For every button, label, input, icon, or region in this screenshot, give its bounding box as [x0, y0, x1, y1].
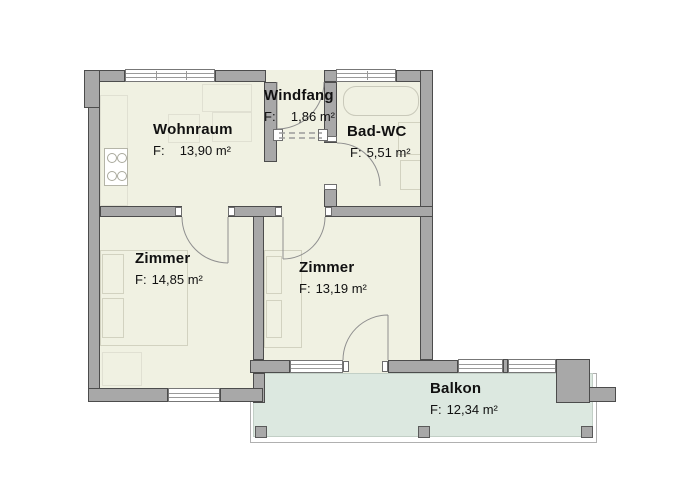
room-name: Wohnraum — [153, 122, 231, 139]
room-area: F:13,19 m² — [299, 282, 383, 296]
wall-interior — [325, 206, 433, 217]
threshold-jamb — [273, 129, 283, 141]
pillow — [102, 298, 124, 338]
door-jamb — [325, 207, 332, 216]
room-label-badwc: Bad-WC F:5,51 m² — [347, 124, 419, 160]
bathtub — [343, 86, 419, 116]
door-jamb — [275, 207, 282, 216]
balcony-post — [581, 426, 593, 438]
room-name: Bad-WC — [347, 124, 419, 141]
toilet — [400, 160, 421, 190]
room-area: F:13,90 m² — [153, 144, 231, 158]
room-area: F:1,86 m² — [264, 110, 335, 124]
wall-neighbor-tab — [589, 387, 616, 402]
window-neighbor — [508, 359, 556, 373]
wall-neighbor-corner — [556, 359, 590, 403]
window-zimmer1 — [168, 388, 220, 402]
room-label-windfang: Windfang F:1,86 m² — [264, 88, 335, 124]
dresser-zimmer1 — [102, 352, 142, 386]
balcony-post — [418, 426, 430, 438]
wall-left — [88, 70, 100, 402]
wohnraum-furniture — [202, 84, 252, 112]
room-label-zimmer1: Zimmer F:14,85 m² — [135, 251, 215, 287]
window-neighbor — [458, 359, 503, 373]
room-name: Zimmer — [135, 251, 215, 268]
room-area: F:12,34 m² — [430, 403, 514, 417]
room-name: Zimmer — [299, 260, 383, 277]
pillow — [266, 300, 282, 338]
room-area: F:5,51 m² — [350, 146, 419, 160]
wall-top — [215, 70, 266, 82]
window-zimmer2 — [290, 360, 343, 373]
threshold-jamb — [318, 129, 328, 141]
wall-zimmer1-bottom — [220, 388, 263, 402]
wall-left-pier — [84, 70, 100, 108]
door-jamb — [175, 207, 182, 216]
door-jamb — [343, 361, 349, 372]
pillow — [102, 254, 124, 294]
balcony-post — [255, 426, 267, 438]
door-jamb — [382, 361, 388, 372]
room-label-balkon: Balkon F:12,34 m² — [430, 381, 514, 417]
window-badwc — [336, 69, 396, 82]
stove-icon — [104, 148, 128, 186]
wall-zimmer2-bottom — [250, 360, 290, 373]
wall-room-divider — [253, 216, 264, 360]
door-jamb — [228, 207, 235, 216]
room-label-zimmer2: Zimmer F:13,19 m² — [299, 260, 383, 296]
room-name: Balkon — [430, 381, 514, 398]
wall-zimmer1-bottom — [88, 388, 168, 402]
window-wohnraum — [125, 69, 215, 82]
room-area: F:14,85 m² — [135, 273, 215, 287]
room-name: Windfang — [264, 88, 335, 105]
wall-interior — [100, 206, 182, 217]
wall-zimmer2-bottom — [388, 360, 458, 373]
door-jamb — [324, 184, 337, 190]
room-label-wohnraum: Wohnraum F:13,90 m² — [153, 122, 231, 158]
floor-plan: Wohnraum F:13,90 m² Windfang F:1,86 m² B… — [0, 0, 700, 500]
pillow — [266, 256, 282, 294]
